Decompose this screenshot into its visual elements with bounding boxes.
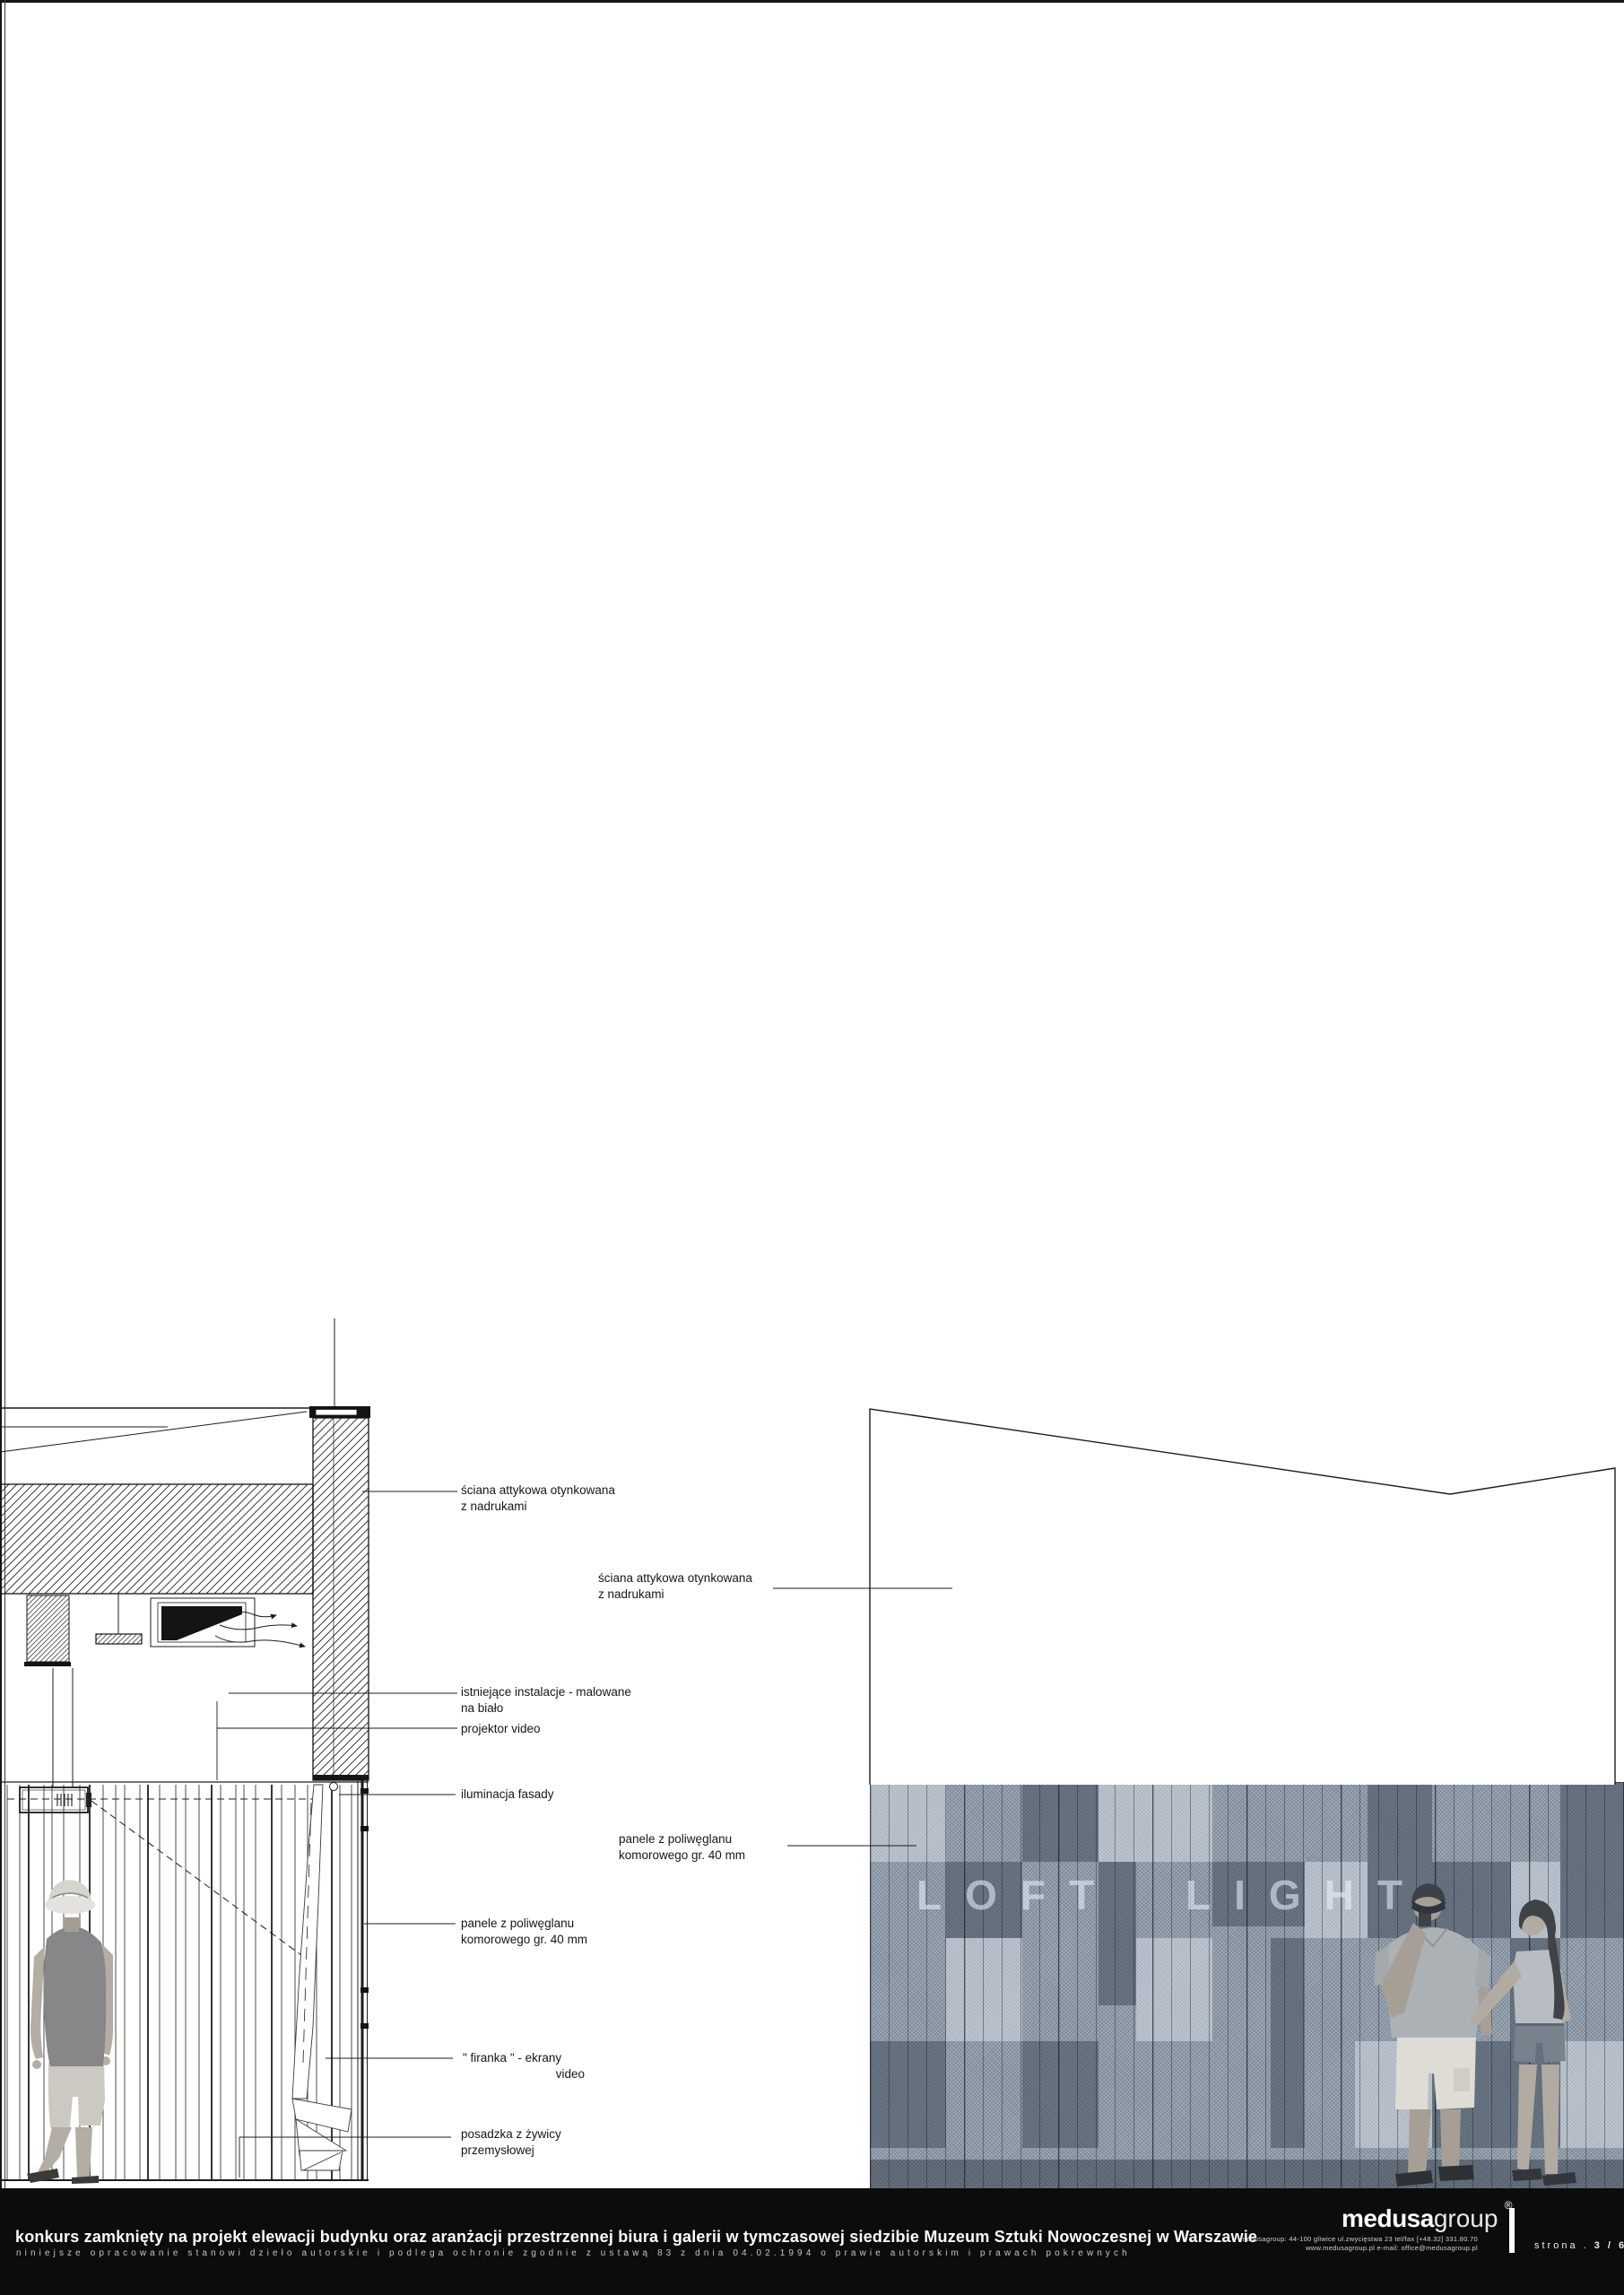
projector-lens xyxy=(86,1793,91,1807)
projection-beam-diagonal xyxy=(91,1801,301,1955)
footer-bar: konkurs zamknięty na projekt elewacji bu… xyxy=(0,2188,1624,2295)
installation-pipe-3 xyxy=(215,1636,305,1647)
installation-pipe-1 xyxy=(226,1612,276,1617)
panel-joint-lines xyxy=(870,1783,1624,2189)
label-line: z nadrukami xyxy=(598,1587,752,1603)
projector-grill xyxy=(57,1794,72,1806)
page-left-border xyxy=(0,0,2,2191)
elevation-outline xyxy=(870,1409,1615,1785)
page-left-border-inner xyxy=(4,0,5,2191)
curtain-video-screen xyxy=(292,1785,352,2170)
installation-pipe-2 xyxy=(220,1625,297,1630)
medusagroup-logo: medusagroup ® xyxy=(1342,2204,1498,2233)
label-line: komorowego gr. 40 mm xyxy=(619,1847,745,1864)
address-line-1: medusagroup: 44-100 gliwice ul.zwycięstw… xyxy=(1211,2235,1478,2244)
projector-mount-rods xyxy=(53,1668,73,1787)
page-label: strona . xyxy=(1534,2240,1589,2251)
address-line-2: www.medusagroup.pl e-mail: office@medusa… xyxy=(1211,2244,1478,2253)
label-line: video xyxy=(463,2066,590,2082)
label-curtain-video-screens: " firanka " - ekrany video xyxy=(463,2050,590,2082)
label-resin-floor: posadzka z żywicy przemysłowej xyxy=(461,2126,561,2159)
copyright-disclaimer: niniejsze opracowanie stanowi dzieło aut… xyxy=(16,2248,1131,2258)
label-facade-illumination: iluminacja fasady xyxy=(461,1786,554,1803)
facade-illumination-fixture xyxy=(330,1783,338,1791)
label-line: ściana attykowa otynkowana xyxy=(461,1483,615,1497)
label-line: na biało xyxy=(461,1700,631,1717)
label-polycarbonate-panels-left: panele z poliwęglanu komorowego gr. 40 m… xyxy=(461,1916,587,1948)
projector-lens-wedge xyxy=(161,1606,242,1640)
video-projector-housing xyxy=(151,1598,255,1647)
label-existing-installations: istniejące instalacje - malowane na biał… xyxy=(461,1684,631,1717)
competition-title: konkurs zamknięty na projekt elewacji bu… xyxy=(15,2228,1257,2247)
page-number: 3 / 6 xyxy=(1594,2240,1624,2251)
studio-address: medusagroup: 44-100 gliwice ul.zwycięstw… xyxy=(1211,2235,1478,2253)
parapet-cap xyxy=(309,1406,370,1418)
wall-panel-stripes xyxy=(7,1785,352,2179)
existing-duct xyxy=(96,1634,142,1644)
label-line: iluminacja fasady xyxy=(461,1787,554,1801)
label-line: komorowego gr. 40 mm xyxy=(461,1932,587,1948)
label-line: z nadrukami xyxy=(461,1499,615,1515)
roof-slope-line xyxy=(0,1412,307,1452)
logo-medusa: medusa xyxy=(1342,2204,1434,2232)
scale-figure-man-back xyxy=(27,1880,113,2184)
left-section-drawing xyxy=(0,1318,457,2184)
label-line: ściana attykowa otynkowana xyxy=(598,1571,752,1585)
beam-section xyxy=(27,1595,69,1662)
label-video-projector: projektor video xyxy=(461,1721,541,1737)
video-projector-body xyxy=(22,1790,85,1810)
parapet-cap-flashing xyxy=(316,1410,357,1416)
logo-group: group xyxy=(1434,2204,1498,2232)
label-polycarbonate-panels-right: panele z poliwęglanu komorowego gr. 40 m… xyxy=(619,1831,745,1864)
competition-board-page: LOFT LIGHT xyxy=(0,0,1624,2295)
label-line: przemysłowej xyxy=(461,2143,561,2159)
label-line: posadzka z żywicy xyxy=(461,2127,561,2141)
page-indicator: strona . 3 / 6 xyxy=(1534,2240,1624,2251)
leader-lines-left xyxy=(217,1491,457,2178)
curtain-axis xyxy=(303,1803,311,2063)
page-top-border xyxy=(0,0,1624,3)
label-attic-wall-right: ściana attykowa otynkowana z nadrukami xyxy=(598,1570,752,1603)
ceiling-slab-section xyxy=(0,1484,313,1594)
video-projector xyxy=(20,1787,88,1813)
attic-wall-elevation xyxy=(870,1409,1615,1785)
label-line: istniejące instalacje - malowane xyxy=(461,1685,631,1699)
photo-bottom-shadow xyxy=(870,2160,1624,2189)
label-line: " firanka " - ekrany xyxy=(463,2051,561,2065)
beam-base xyxy=(24,1662,71,1666)
facade-print-text-light: LIGHT xyxy=(1185,1871,1426,1919)
label-line: projektor video xyxy=(461,1722,541,1735)
video-projector-inner xyxy=(158,1603,246,1642)
facade-photo-elevation: LOFT LIGHT xyxy=(870,1782,1624,2189)
label-line: panele z poliwęglanu xyxy=(461,1917,574,1930)
attic-wall-bottom-bar xyxy=(313,1775,369,1780)
panel-joint-ticks xyxy=(360,1788,369,2029)
attic-wall-section xyxy=(313,1418,369,1780)
facade-print-text-loft: LOFT xyxy=(916,1871,1117,1919)
label-line: panele z poliwęglanu xyxy=(619,1832,732,1846)
footer-separator-bar xyxy=(1509,2208,1515,2253)
label-attic-wall-left: ściana attykowa otynkowana z nadrukami xyxy=(461,1482,615,1515)
